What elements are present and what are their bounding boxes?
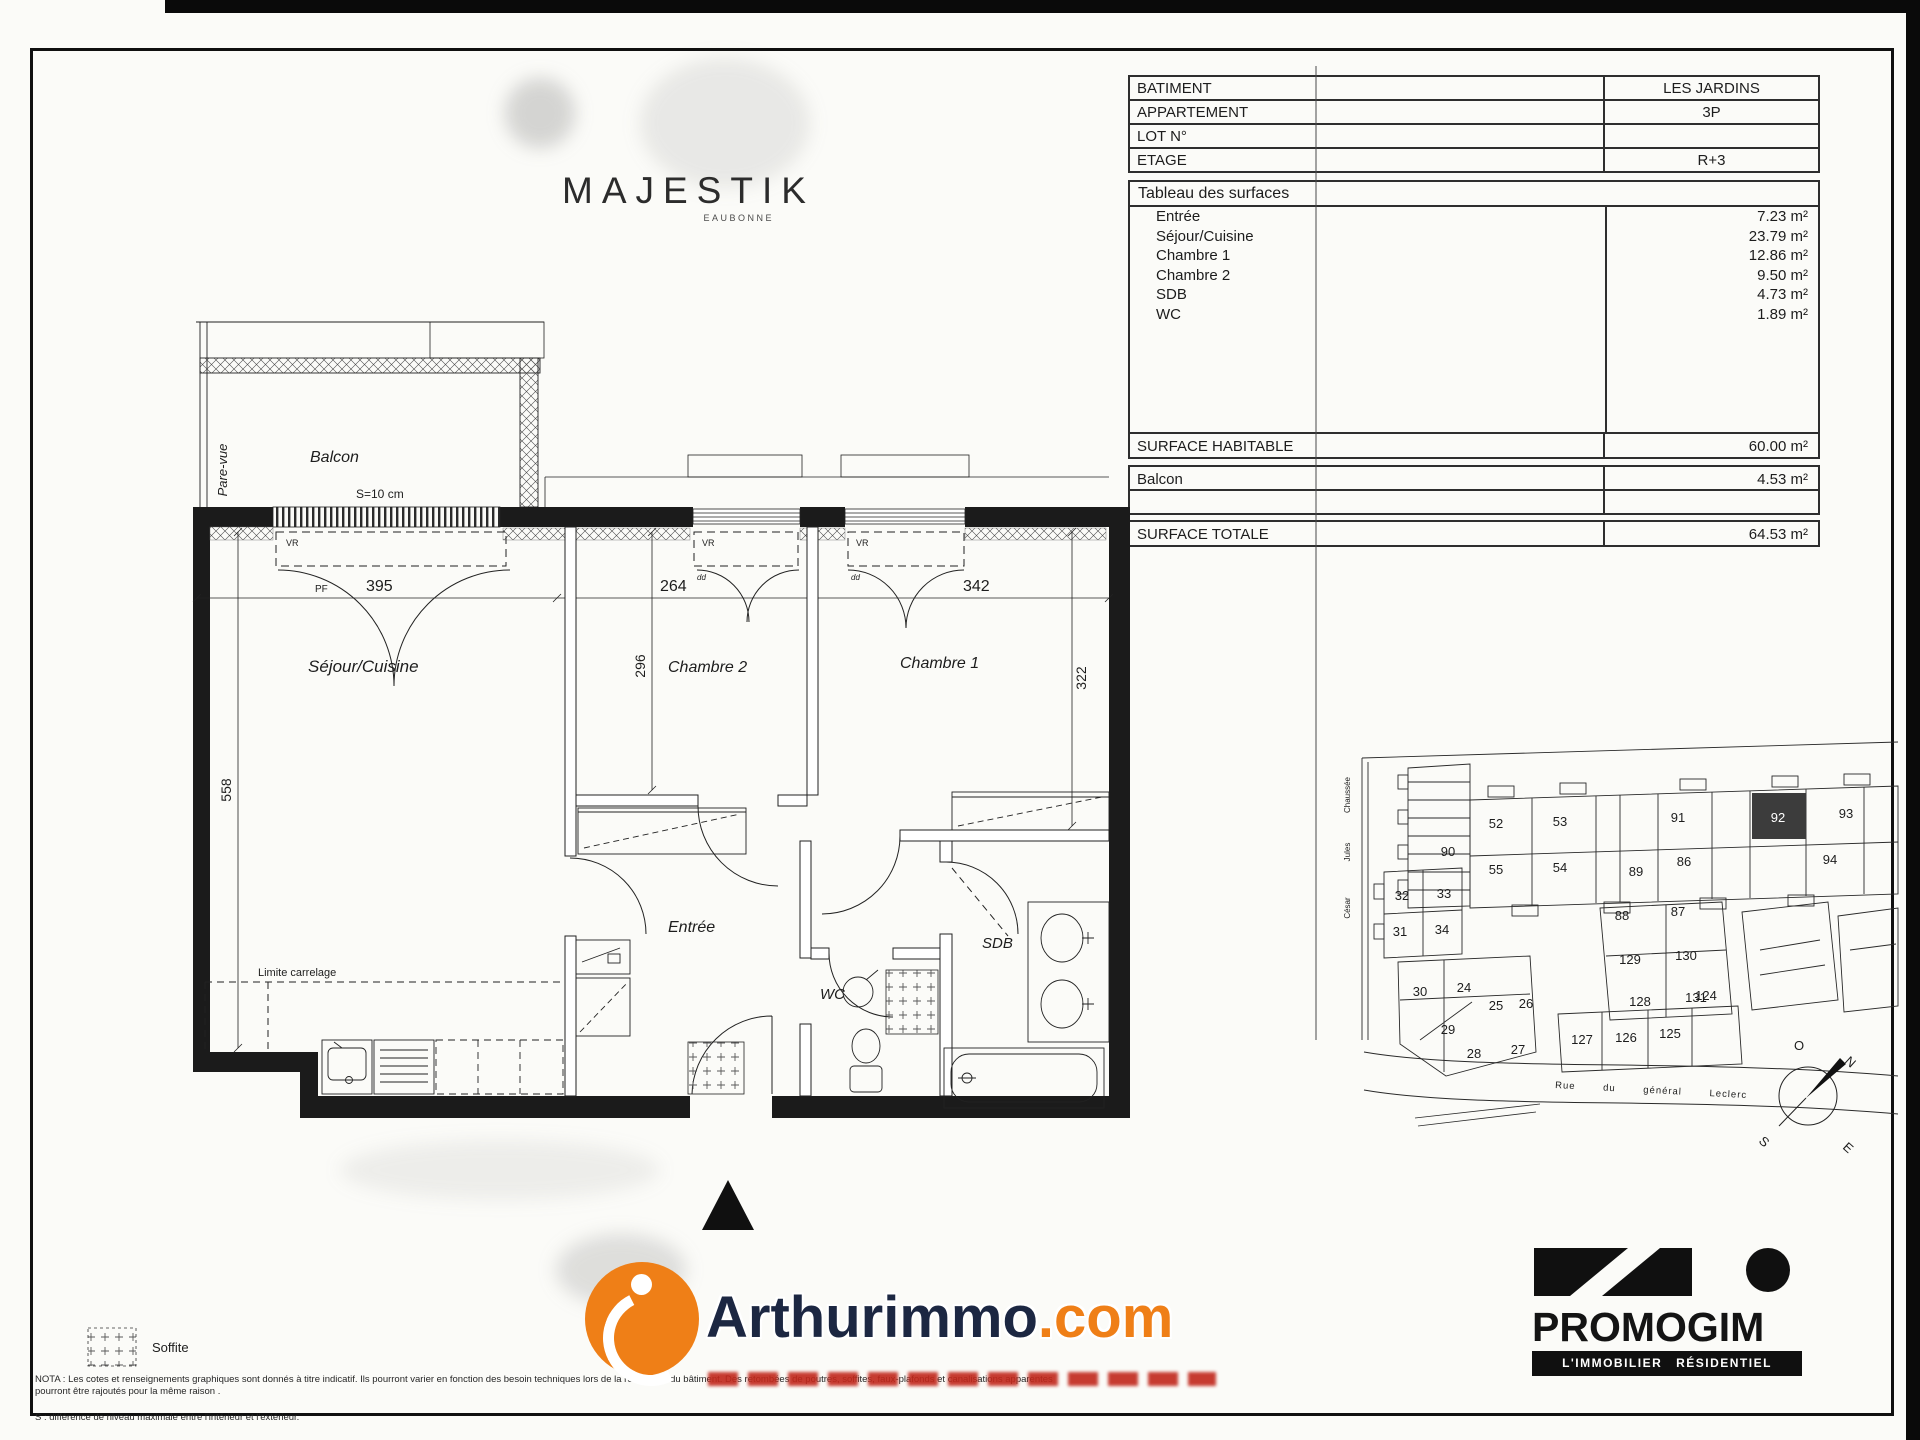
siteplan-unit: 89: [1629, 864, 1643, 879]
siteplan-unit: 88: [1615, 908, 1629, 923]
soffite-patch: [886, 970, 938, 1034]
compass-rose: O N S E: [1756, 1038, 1859, 1156]
siteplan-unit: 32: [1395, 888, 1409, 903]
label-dd: dd: [851, 573, 860, 582]
room-label-wc: WC: [820, 986, 845, 1003]
compass-east: E: [1840, 1139, 1857, 1156]
siteplan-unit: 52: [1489, 816, 1503, 831]
siteplan-unit: 25: [1489, 998, 1503, 1013]
siteplan-unit: 26: [1519, 996, 1533, 1011]
label-s10: S=10 cm: [356, 487, 404, 501]
siteplan-unit: 94: [1823, 852, 1837, 867]
nota-line-2: S : différence de niveau maximale entre …: [35, 1412, 1075, 1424]
room-label-chambre1: Chambre 1: [900, 655, 979, 672]
siteplan-unit: 127: [1571, 1032, 1593, 1047]
siteplan-unit: 130: [1675, 948, 1697, 963]
label-vr: VR: [286, 538, 299, 548]
siteplan-unit: 93: [1839, 806, 1853, 821]
room-label-entree: Entrée: [668, 919, 715, 936]
dim-395: 395: [366, 578, 393, 595]
promogim-tagline: L'IMMOBILIER RÉSIDENTIEL: [1532, 1351, 1802, 1376]
sdb-fixtures: [944, 902, 1109, 1108]
siteplan-unit: 126: [1615, 1030, 1637, 1045]
label-vr: VR: [702, 538, 715, 548]
arthurimmo-tld: .com: [1038, 1285, 1173, 1350]
dim-342: 342: [963, 578, 990, 595]
label-limite-carrelage: Limite carrelage: [258, 967, 336, 979]
dim-558: 558: [218, 778, 234, 802]
siteplan-unit: 24: [1457, 980, 1471, 995]
arthurimmo-name: Arthurimmo: [706, 1285, 1038, 1350]
street-name-label: Rue du général Leclerc: [1555, 1080, 1748, 1101]
soffite-legend: Soffite: [88, 1328, 189, 1366]
compass-west: O: [1794, 1038, 1804, 1053]
siteplan-unit: 31: [1393, 924, 1407, 939]
compass-needle: [1806, 1058, 1846, 1098]
dim-264: 264: [660, 578, 687, 595]
dim-322: 322: [1073, 666, 1089, 690]
dim-296: 296: [632, 654, 648, 678]
siteplan-unit: 34: [1435, 922, 1449, 937]
room-label-chambre2: Chambre 2: [668, 659, 747, 676]
arthurimmo-tagline-blur: [708, 1372, 1216, 1386]
compass-north: N: [1842, 1053, 1859, 1070]
siteplan-unit: 54: [1553, 860, 1567, 875]
siteplan-unit: 86: [1677, 854, 1691, 869]
siteplan-unit: 125: [1659, 1026, 1681, 1041]
label-pf: PF: [315, 584, 328, 595]
interior-partitions: [565, 527, 1109, 1096]
promogim-logo: PROMOGIM L'IMMOBILIER RÉSIDENTIEL: [1532, 1244, 1802, 1376]
arthurimmo-mascot-icon: [585, 1262, 699, 1376]
pare-vue-screen: [520, 358, 538, 507]
arthurimmo-logo: Arthurimmo.com: [706, 1284, 1173, 1351]
siteplan-unit: 87: [1671, 904, 1685, 919]
soffite-legend-swatch: [88, 1328, 136, 1366]
window-chambre1: [845, 509, 965, 524]
siteplan-unit: 129: [1619, 952, 1641, 967]
siteplan-unit: 90: [1441, 844, 1455, 859]
bay-window-shutter: [273, 507, 500, 527]
entrance-marker-triangle: [702, 1180, 754, 1230]
siteplan-unit: 128: [1629, 994, 1651, 1009]
siteplan-unit: 27: [1511, 1042, 1525, 1057]
floorplan-drawing: Balcon S=10 cm Pare-vue Séjour/Cuisine C…: [0, 0, 1920, 1440]
siteplan-unit: 28: [1467, 1046, 1481, 1061]
siteplan-unit: 33: [1437, 886, 1451, 901]
siteplan-unit: 124: [1695, 988, 1717, 1003]
siteplan-unit: 91: [1671, 810, 1685, 825]
compass-south: S: [1756, 1133, 1773, 1150]
promogim-name: PROMOGIM: [1532, 1305, 1802, 1349]
wc-fixtures: [843, 970, 882, 1092]
label-pare-vue: Pare-vue: [215, 444, 230, 497]
promogim-emblem-icon: [1532, 1244, 1802, 1300]
side-street-label: Jules: [1343, 843, 1352, 862]
balcony-structure: [196, 322, 1109, 507]
side-street-label: Chaussée: [1343, 776, 1352, 813]
soffite-legend-label: Soffite: [152, 1340, 189, 1355]
room-label-sdb: SDB: [982, 935, 1013, 952]
exterior-walls: [193, 507, 1130, 1118]
siteplan-unit: 30: [1413, 984, 1427, 999]
kitchen-fixtures: [322, 1040, 563, 1094]
soffite-patch: [688, 1042, 744, 1094]
label-vr: VR: [856, 538, 869, 548]
siteplan-unit: 29: [1441, 1022, 1455, 1037]
room-label-balcon: Balcon: [310, 449, 359, 466]
siteplan-unit: 92: [1771, 810, 1785, 825]
siteplan-unit: 55: [1489, 862, 1503, 877]
room-label-sejour: Séjour/Cuisine: [308, 657, 419, 676]
window-chambre2: [693, 509, 800, 524]
label-dd: dd: [697, 573, 706, 582]
wall-hatch: [210, 527, 1106, 540]
side-street-label: César: [1343, 897, 1352, 919]
siteplan-unit: 53: [1553, 814, 1567, 829]
